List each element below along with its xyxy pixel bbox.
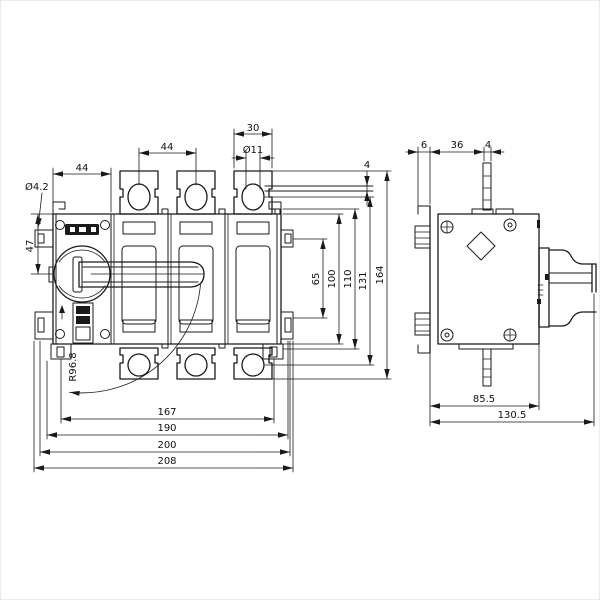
- dim-stud-width-label: 4: [485, 140, 491, 151]
- dim-rail-gap: 6: [406, 140, 430, 211]
- dim-slot-span-label: 167: [157, 407, 176, 418]
- mounting-rail: [415, 206, 430, 353]
- pole-3: [236, 222, 270, 332]
- pole-1: [122, 222, 156, 332]
- bottom-terminals: [120, 344, 272, 379]
- dim-width-200-label: 200: [157, 440, 176, 451]
- shaft-square-opening: [467, 232, 495, 260]
- terminal-lug-lines: [265, 186, 373, 191]
- side-top-terminal: [472, 163, 513, 214]
- dim-stud-offset-label: 36: [451, 140, 464, 151]
- drawing-sheet: 47 Ø4.2 44 44 30: [0, 0, 600, 600]
- dim-mech-width-label: 44: [76, 163, 89, 174]
- dim-width-190: 190: [47, 341, 288, 439]
- dim-terminal-width-label: 30: [247, 123, 260, 134]
- dim-mount-hole: Ø4.2: [25, 181, 49, 228]
- handle-lever: [73, 257, 204, 292]
- screw-icon: [56, 330, 65, 339]
- pole-2: [179, 222, 213, 332]
- dim-lug-thickness-label: 4: [364, 160, 370, 171]
- dim-stud-width: 4: [484, 140, 504, 161]
- dim-overall-depth-label: 130.5: [498, 410, 527, 421]
- dim-mount-hole-label: Ø4.2: [25, 181, 49, 193]
- top-terminals: [120, 171, 280, 214]
- dim-lug-thickness: 4: [364, 160, 370, 205]
- dim-hole-span-label: 131: [358, 271, 369, 290]
- dim-handle-center-label: 47: [25, 240, 36, 253]
- side-bottom-terminal: [459, 344, 513, 386]
- mechanism-section: [49, 221, 204, 344]
- dim-stud-offset: 36: [430, 140, 484, 161]
- dim-pole-pitch: 44: [139, 142, 196, 185]
- dim-mid-height-label: 110: [343, 269, 354, 288]
- pole-sections: [122, 222, 270, 332]
- dim-handle-center: 47: [25, 214, 53, 274]
- side-body: [438, 214, 539, 344]
- screw-icon: [504, 219, 516, 231]
- dim-clip-span-label: 65: [311, 273, 322, 286]
- screw-icon: [56, 221, 65, 230]
- dim-terminal-hole: Ø11: [232, 144, 274, 189]
- dim-terminal-hole-label: Ø11: [243, 144, 264, 156]
- dim-mech-width: 44: [53, 163, 111, 212]
- screw-icon: [441, 329, 453, 341]
- dimension-drawing: 47 Ø4.2 44 44 30: [1, 1, 600, 601]
- screw-icon: [101, 221, 110, 230]
- dim-width-190-label: 190: [157, 423, 176, 434]
- front-view: [35, 171, 373, 396]
- side-view: [415, 163, 596, 386]
- dim-pole-pitch-label: 44: [161, 142, 174, 153]
- dim-body-depth-label: 85.5: [473, 394, 495, 405]
- dim-rail-gap-label: 6: [421, 140, 427, 151]
- dim-body-height-label: 100: [327, 269, 338, 288]
- dim-overall-width-label: 208: [157, 456, 176, 467]
- screw-icon: [441, 221, 453, 233]
- front-dimensions: 47 Ø4.2 44 44 30: [25, 123, 391, 472]
- screw-icon: [504, 329, 516, 341]
- screw-icon: [101, 330, 110, 339]
- dim-swing-radius-label: R96.8: [68, 352, 79, 381]
- rating-label: [65, 224, 99, 235]
- direction-arrow-icon: [59, 305, 65, 319]
- side-handle: [537, 220, 596, 327]
- position-indicator: [73, 303, 93, 343]
- dim-overall-height-label: 164: [375, 265, 386, 284]
- dim-clip-span: 65: [293, 239, 327, 318]
